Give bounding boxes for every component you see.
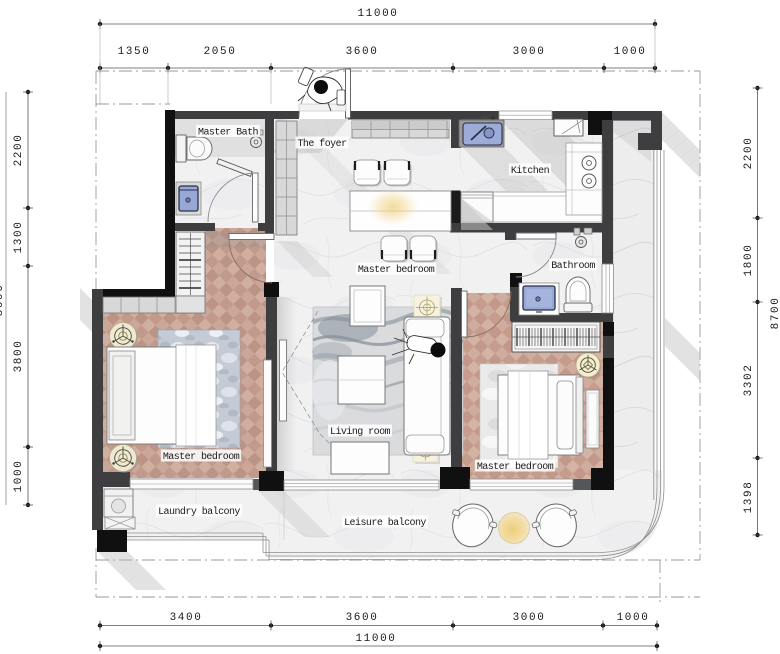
svg-text:2200: 2200 xyxy=(743,137,755,170)
svg-text:The foyer: The foyer xyxy=(297,138,347,150)
svg-text:Living room: Living room xyxy=(330,426,391,438)
svg-text:3800: 3800 xyxy=(13,340,25,373)
svg-text:3000: 3000 xyxy=(513,46,546,58)
svg-text:Master Bath: Master Bath xyxy=(198,127,259,139)
svg-text:8600: 8600 xyxy=(0,284,6,317)
svg-text:11000: 11000 xyxy=(355,633,396,645)
svg-text:1000: 1000 xyxy=(13,460,25,493)
svg-text:3000: 3000 xyxy=(513,612,546,624)
svg-text:2050: 2050 xyxy=(204,46,237,58)
svg-text:Bathroom: Bathroom xyxy=(551,260,595,272)
svg-text:3302: 3302 xyxy=(743,364,755,397)
svg-text:1350: 1350 xyxy=(118,46,151,58)
svg-text:3400: 3400 xyxy=(170,612,203,624)
svg-text:1000: 1000 xyxy=(614,46,647,58)
svg-text:Master bedroom: Master bedroom xyxy=(163,451,240,463)
svg-text:Laundry balcony: Laundry balcony xyxy=(158,506,240,518)
svg-text:1300: 1300 xyxy=(13,221,25,254)
svg-text:1398: 1398 xyxy=(743,481,755,514)
svg-text:Master bedroom: Master bedroom xyxy=(358,264,435,276)
svg-text:3600: 3600 xyxy=(346,612,379,624)
svg-text:3600: 3600 xyxy=(346,46,379,58)
svg-text:Leisure balcony: Leisure balcony xyxy=(344,517,426,529)
svg-text:8700: 8700 xyxy=(770,297,780,330)
svg-text:Kitchen: Kitchen xyxy=(511,165,550,177)
svg-text:2200: 2200 xyxy=(13,134,25,167)
svg-text:Master bedroom: Master bedroom xyxy=(477,461,554,473)
svg-text:11000: 11000 xyxy=(357,8,398,20)
svg-text:1800: 1800 xyxy=(743,244,755,277)
svg-text:1000: 1000 xyxy=(617,612,650,624)
